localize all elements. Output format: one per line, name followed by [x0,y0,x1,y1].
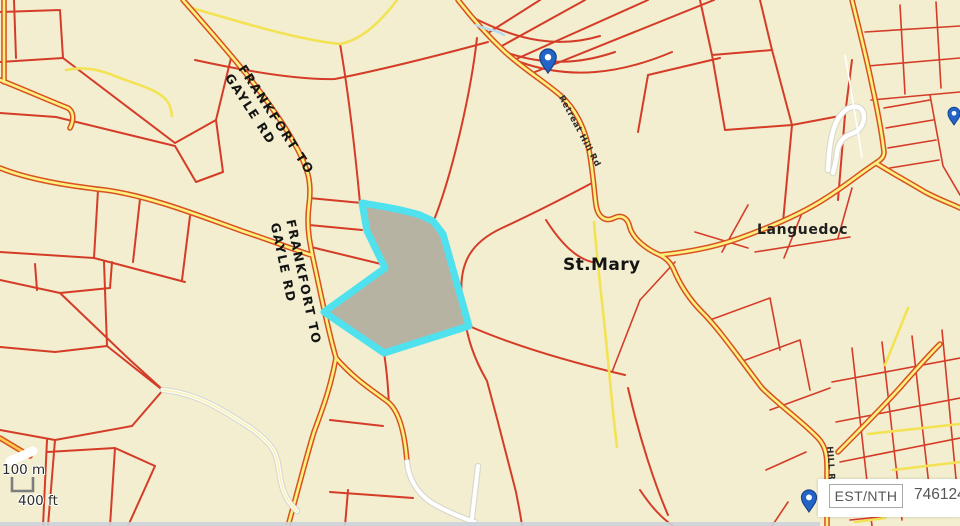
main-roads [0,0,960,526]
road-casings [0,0,960,526]
scale-imperial-label: 400 ft [18,493,58,509]
highlighted-parcel[interactable] [324,203,469,353]
minor-roads [66,0,960,522]
bottom-edge-strip [0,522,820,526]
coordinate-panel: EST/NTH 746124.2 [818,479,960,517]
road-surfaces [0,0,960,526]
map-pin-bottom[interactable] [801,490,816,512]
map-pin-right-edge[interactable] [948,107,960,125]
parcel-boundaries [0,0,960,526]
map-canvas[interactable] [0,0,960,526]
scale-metric-label: 100 m [2,462,45,478]
place-label-st-mary: St.Mary [563,255,640,275]
scale-bar: 100 m 400 ft [0,456,120,516]
place-label-languedoc: Languedoc [757,222,848,238]
coordinate-value: 746124.2 [914,486,960,504]
est-nth-button[interactable]: EST/NTH [829,484,903,508]
map-viewport[interactable]: FRANKFORT TO GAYLE RD FRANKFORT TO GAYLE… [0,0,960,526]
